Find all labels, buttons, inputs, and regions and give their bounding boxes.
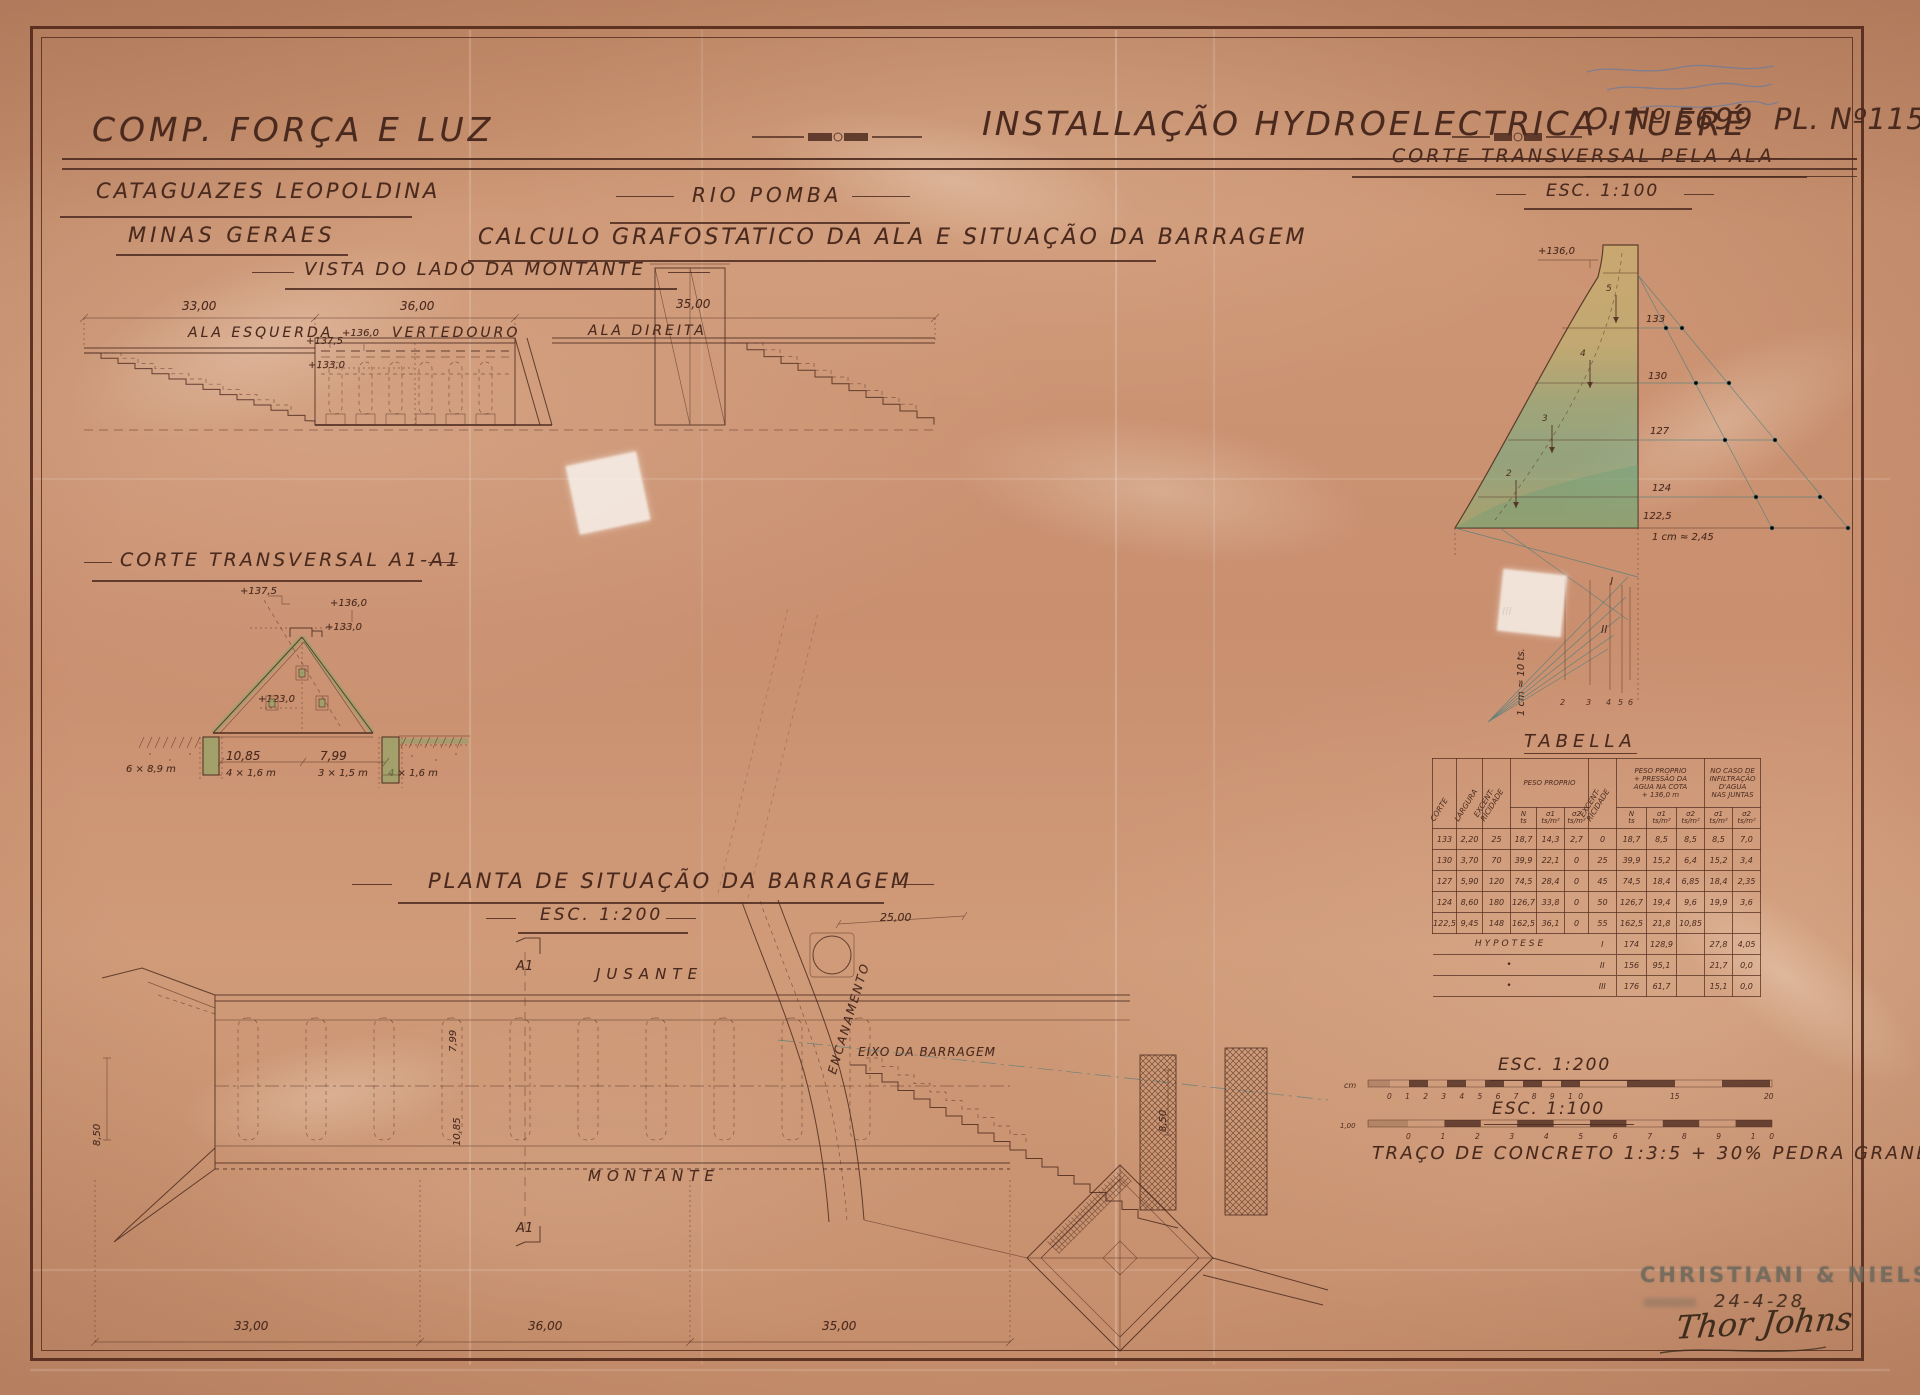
corte-ala-scale: ESC. 1:100 [1546, 182, 1659, 201]
corte-ala-title-dash [1352, 158, 1382, 159]
table-cell: 3,6 [1733, 892, 1761, 913]
location-line1: CATAGUAZES LEOPOLDINA [96, 180, 440, 203]
table-cell: 7,0 [1733, 829, 1761, 850]
table-cell: 0 [1565, 871, 1589, 892]
group-header-peso-agua: PESO PROPRIO + PRESSÃO DA AGUA NA COTA +… [1617, 759, 1705, 808]
table-cell [1705, 913, 1733, 934]
table-cell [1677, 976, 1705, 997]
hypotese-label: • [1433, 955, 1589, 976]
stamp-subtext-smudge [1644, 1298, 1696, 1307]
table-cell: 18,7 [1617, 829, 1647, 850]
table-row: 1248,60180126,733,8050126,719,49,619,93,… [1433, 892, 1761, 913]
table-cell: 10,85 [1677, 913, 1705, 934]
table-cell: 15,2 [1647, 850, 1677, 871]
table-cell: 28,4 [1537, 871, 1565, 892]
table-cell: 9,6 [1677, 892, 1705, 913]
planta-drawing [78, 890, 1328, 1360]
table-cell: 133 [1433, 829, 1457, 850]
table-cell: 126,7 [1511, 892, 1537, 913]
sub-header-n: N ts [1617, 808, 1647, 829]
bar2-numbers: 0 1 2 3 4 5 6 7 8 9 10 [1406, 1132, 1774, 1141]
table-cell: 25 [1483, 829, 1511, 850]
table-cell: 8,5 [1705, 829, 1733, 850]
table-cell: 45 [1589, 871, 1617, 892]
table-cell: 3,4 [1733, 850, 1761, 871]
concrete-mix-note: TRAÇO DE CONCRETO 1:3:5 + 30% PEDRA GRAN… [1372, 1144, 1920, 1164]
location-underline [60, 216, 412, 218]
force-number: 4 [1580, 349, 1586, 359]
corte-a1-title: CORTE TRANSVERSAL A1-A1 [120, 550, 461, 571]
table-cell: 8,5 [1677, 829, 1705, 850]
handwritten-note [1582, 58, 1782, 122]
table-cell [1677, 934, 1705, 955]
table-cell: 6,4 [1677, 850, 1705, 871]
company-name: COMP. FORÇA E LUZ [92, 112, 494, 148]
table-cell: 124 [1433, 892, 1457, 913]
table-cell: 128,9 [1647, 934, 1677, 955]
table-row-hypotese: HYPOTESE I 174 128,9 27,8 4,05 [1433, 934, 1761, 955]
divider-ornament-icon [1452, 128, 1582, 146]
table-cell: 19,9 [1705, 892, 1733, 913]
table-cell: 122,5 [1433, 913, 1457, 934]
bar1-mid: 15 [1670, 1092, 1680, 1101]
table-cell: 95,1 [1647, 955, 1677, 976]
table-cell: 0 [1565, 913, 1589, 934]
table-cell: 176 [1617, 976, 1647, 997]
table-cell: 4,05 [1733, 934, 1761, 955]
table-cell: 9,45 [1457, 913, 1483, 934]
hypotese-numeral: I [1589, 934, 1617, 955]
bar2-unit: 1,00 [1340, 1122, 1356, 1130]
corte-ala-scale-dash [1496, 194, 1526, 195]
table-cell: 6,85 [1677, 871, 1705, 892]
corte-ala-drawing: 5 4 3 2 2 3 4 5 6 I II III [1440, 225, 1870, 745]
table-cell: 174 [1617, 934, 1647, 955]
paper-scuff [942, 391, 1377, 588]
bar1-numbers: 0 1 2 3 4 5 6 7 8 9 10 [1387, 1092, 1583, 1101]
bar1-end: 20 [1764, 1092, 1774, 1101]
river-dash [852, 196, 910, 197]
table-cell: 19,4 [1647, 892, 1677, 913]
group-header-peso-proprio: PESO PROPRIO [1511, 759, 1589, 808]
table-cell: 33,8 [1537, 892, 1565, 913]
planta-title-dash [894, 884, 934, 885]
table-cell: 36,1 [1537, 913, 1565, 934]
table-cell: 39,9 [1511, 850, 1537, 871]
hypothesis-numeral: II [1601, 623, 1608, 636]
contractor-stamp: CHRISTIANI & NIELSEN [1640, 1264, 1920, 1287]
corte-a1-title-dash [84, 562, 112, 563]
table-cell: 8,60 [1457, 892, 1483, 913]
tabella-title: TABELLA [1524, 732, 1637, 754]
table-cell: 127 [1433, 871, 1457, 892]
table-cell: 14,3 [1537, 829, 1565, 850]
scale-bars: cm 0 1 2 3 4 5 6 7 8 9 10 15 20 1,00 0 1… [1340, 1058, 1820, 1150]
col-header-excentricidade: EXCENT- RICIDADE [1483, 759, 1511, 829]
sub-header-s2: σ2 ts/m² [1677, 808, 1705, 829]
vista-drawing [78, 252, 950, 448]
flume-drawing [690, 598, 840, 898]
table-cell: 162,5 [1511, 913, 1537, 934]
group-header-infiltracao: NO CASO DE INFILTRAÇÃO D'AGUA NAS JUNTAS [1705, 759, 1761, 808]
table-row-hypotese: • II 156 95,1 21,7 0,0 [1433, 955, 1761, 976]
table-cell: 27,8 [1705, 934, 1733, 955]
sub-header-s2: σ2 ts/m² [1733, 808, 1761, 829]
table-cell: 15,1 [1705, 976, 1733, 997]
table-cell: 162,5 [1617, 913, 1647, 934]
corte-a1-drawing [100, 576, 472, 832]
table-cell: 148 [1483, 913, 1511, 934]
corte-ala-title-dash [1756, 158, 1786, 159]
table-cell: 130 [1433, 850, 1457, 871]
sub-header-n: N ts [1511, 808, 1537, 829]
sub-header-s1: σ1 ts/m² [1537, 808, 1565, 829]
corte-ala-scale-dash [1684, 194, 1714, 195]
drawing-sheet: COMP. FORÇA E LUZ INSTALLAÇÃO HYDROELECT… [0, 0, 1920, 1395]
drawing-subject: CALCULO GRAFOSTATICO DA ALA E SITUAÇÃO D… [478, 226, 1307, 250]
table-cell: 2,20 [1457, 829, 1483, 850]
table-cell: 70 [1483, 850, 1511, 871]
table-row: 1332,202518,714,32,7018,78,58,58,57,0 [1433, 829, 1761, 850]
hypotese-numeral: III [1589, 976, 1617, 997]
sub-header-s1: σ1 ts/m² [1705, 808, 1733, 829]
planta-title-dash [352, 884, 392, 885]
table-cell: 61,7 [1647, 976, 1677, 997]
polygon-number: 6 [1628, 698, 1633, 707]
hypotese-label: HYPOTESE [1433, 934, 1589, 955]
table-cell: 21,8 [1647, 913, 1677, 934]
force-number: 5 [1606, 284, 1612, 294]
table-cell [1733, 913, 1761, 934]
table-cell: 0 [1589, 829, 1617, 850]
signature-flourish [1658, 1344, 1830, 1358]
table-cell: 22,1 [1537, 850, 1565, 871]
table-cell: 15,2 [1705, 850, 1733, 871]
tabella-table: CORTE LARGURA EXCENT- RICIDADE PESO PROP… [1432, 758, 1761, 997]
signature: Thor Johns [1674, 1301, 1855, 1346]
bar1-unit: cm [1344, 1081, 1356, 1090]
table-cell: 74,5 [1617, 871, 1647, 892]
tabella: CORTE LARGURA EXCENT- RICIDADE PESO PROP… [1432, 758, 1761, 997]
corte-ala-scale-underline [1524, 208, 1692, 210]
river-underline [610, 222, 910, 224]
hypothesis-numeral: I [1610, 575, 1613, 588]
table-cell: 2,35 [1733, 871, 1761, 892]
table-cell: 120 [1483, 871, 1511, 892]
force-number: 2 [1506, 469, 1512, 479]
fold-crease [30, 1368, 1890, 1372]
paper-patch [566, 451, 651, 534]
hypotese-label: • [1433, 976, 1589, 997]
table-cell: 8,5 [1647, 829, 1677, 850]
table-cell: 126,7 [1617, 892, 1647, 913]
table-cell: 55 [1589, 913, 1617, 934]
table-row-hypotese: • III 176 61,7 15,1 0,0 [1433, 976, 1761, 997]
table-cell: 0 [1565, 850, 1589, 871]
corte-ala-underline [1352, 176, 1807, 178]
table-cell: 156 [1617, 955, 1647, 976]
table-cell: 74,5 [1511, 871, 1537, 892]
col-header-excentricidade-2: EXCENT- RICIDADE [1589, 759, 1617, 829]
table-cell: 18,4 [1647, 871, 1677, 892]
table-cell: 180 [1483, 892, 1511, 913]
table-row: 1303,707039,922,102539,915,26,415,23,4 [1433, 850, 1761, 871]
force-number: 3 [1542, 414, 1548, 424]
table-cell: 0,0 [1733, 955, 1761, 976]
table-row: 1275,9012074,528,404574,518,46,8518,42,3… [1433, 871, 1761, 892]
table-cell: 50 [1589, 892, 1617, 913]
paper-patch [1497, 569, 1567, 637]
polygon-number: 3 [1586, 698, 1591, 707]
table-cell: 3,70 [1457, 850, 1483, 871]
table-cell: 39,9 [1617, 850, 1647, 871]
polygon-number: 2 [1560, 698, 1565, 707]
corte-a1-title-dash [428, 562, 458, 563]
sub-header-s1: σ1 ts/m² [1647, 808, 1677, 829]
table-cell: 5,90 [1457, 871, 1483, 892]
table-cell: 2,7 [1565, 829, 1589, 850]
table-cell [1677, 955, 1705, 976]
polygon-number: 5 [1618, 698, 1623, 707]
corte-ala-title: CORTE TRANSVERSAL PELA ALA [1392, 146, 1775, 167]
table-cell: 18,4 [1705, 871, 1733, 892]
polygon-number: 4 [1606, 698, 1611, 707]
table-cell: 18,7 [1511, 829, 1537, 850]
location-line2: MINAS GERAES [128, 224, 336, 247]
table-cell: 21,7 [1705, 955, 1733, 976]
table-cell: 0,0 [1733, 976, 1761, 997]
table-cell: 25 [1589, 850, 1617, 871]
river-dash [616, 196, 674, 197]
river-name: RIO POMBA [692, 184, 842, 206]
divider-ornament-icon [752, 128, 922, 146]
table-row: 122,59,45148162,536,1055162,521,810,85 [1433, 913, 1761, 934]
hypotese-numeral: II [1589, 955, 1617, 976]
table-cell: 0 [1565, 892, 1589, 913]
